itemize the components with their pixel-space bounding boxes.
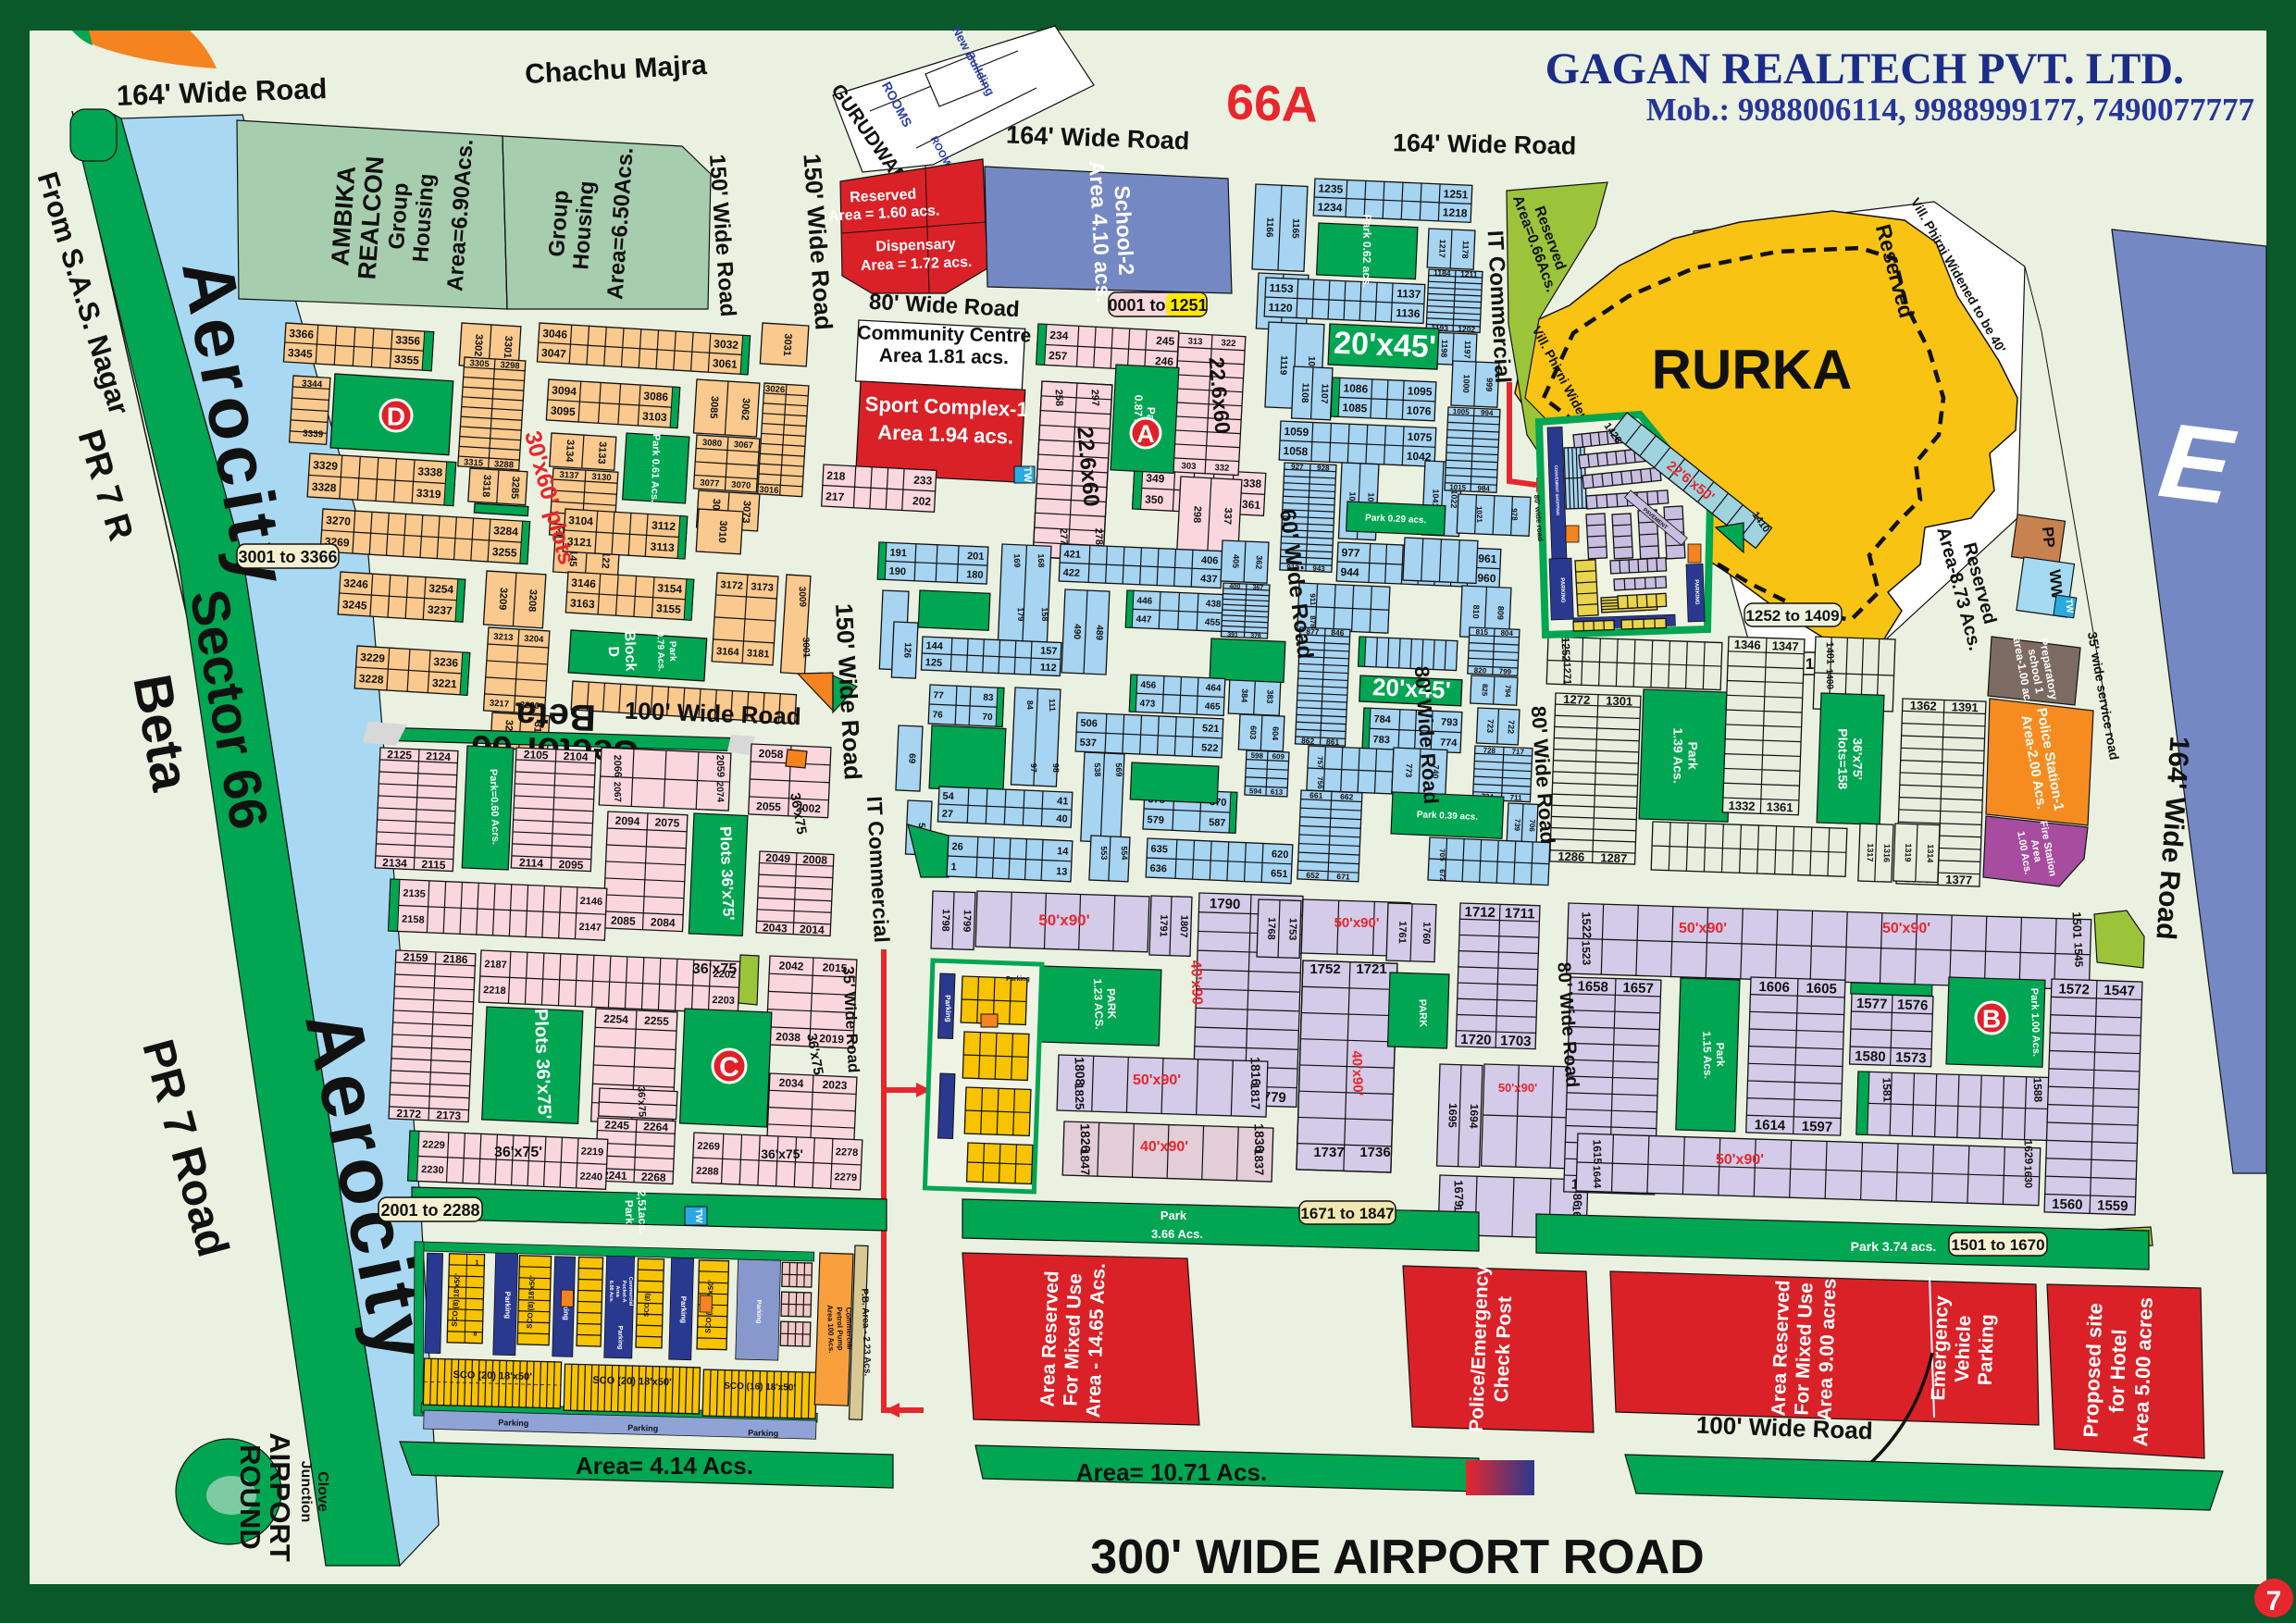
svg-text:1120: 1120	[1268, 301, 1293, 315]
svg-text:1.15 Acs.: 1.15 Acs.	[1700, 1031, 1715, 1079]
svg-text:1615: 1615	[1591, 1139, 1605, 1164]
svg-text:2023: 2023	[822, 1078, 848, 1092]
svg-text:1736: 1736	[1359, 1145, 1390, 1160]
svg-text:2114: 2114	[519, 856, 544, 870]
svg-text:Check Post: Check Post	[1491, 1296, 1516, 1403]
svg-text:3067: 3067	[734, 440, 754, 451]
svg-text:112: 112	[1040, 663, 1057, 675]
svg-text:609: 609	[1272, 752, 1285, 762]
svg-text:1.23 ACS.: 1.23 ACS.	[1091, 978, 1106, 1029]
svg-text:2288: 2288	[696, 1166, 719, 1178]
svg-text:3001: 3001	[800, 638, 812, 659]
svg-text:1703: 1703	[1500, 1033, 1532, 1049]
svg-text:1768: 1768	[1265, 917, 1277, 940]
svg-text:40'x90': 40'x90'	[1348, 1050, 1366, 1096]
svg-text:D: D	[387, 403, 405, 431]
svg-text:313: 313	[1187, 336, 1202, 347]
svg-text:2066: 2066	[612, 754, 624, 777]
svg-text:1058: 1058	[1283, 444, 1309, 458]
svg-text:1: 1	[950, 861, 957, 873]
svg-text:1837: 1837	[1251, 1148, 1266, 1175]
svg-text:1005: 1005	[1453, 407, 1471, 416]
svg-text:2043: 2043	[763, 921, 788, 935]
svg-text:1816: 1816	[1247, 1057, 1263, 1086]
svg-text:1287: 1287	[1600, 850, 1627, 865]
svg-text:234: 234	[1049, 328, 1069, 342]
svg-text:69: 69	[906, 753, 916, 764]
svg-text:661: 661	[1309, 790, 1323, 800]
svg-text:Community Centre: Community Centre	[857, 322, 1031, 346]
svg-text:1166: 1166	[1263, 217, 1274, 239]
svg-text:1580: 1580	[1855, 1048, 1886, 1065]
svg-text:2074: 2074	[714, 782, 726, 803]
svg-text:376: 376	[1250, 633, 1261, 640]
svg-text:636: 636	[1149, 863, 1167, 875]
svg-text:1807: 1807	[1178, 915, 1190, 938]
svg-text:3070: 3070	[731, 480, 751, 491]
svg-text:2085: 2085	[611, 914, 637, 928]
svg-text:723: 723	[1485, 719, 1496, 733]
svg-text:3236: 3236	[433, 655, 459, 670]
svg-text:84: 84	[1025, 700, 1035, 710]
svg-text:Block: Block	[621, 630, 639, 671]
svg-text:3319: 3319	[416, 487, 441, 502]
svg-text:Plots=158: Plots=158	[1836, 728, 1851, 789]
svg-text:804: 804	[1500, 629, 1513, 638]
svg-text:3062: 3062	[738, 398, 751, 421]
svg-text:2095: 2095	[558, 858, 584, 872]
svg-text:383: 383	[1265, 689, 1275, 703]
svg-text:Park: Park	[1160, 1208, 1187, 1222]
svg-text:PARKING: PARKING	[1559, 577, 1566, 603]
svg-text:2134: 2134	[382, 856, 408, 870]
svg-text:794: 794	[1503, 685, 1512, 698]
svg-text:2240: 2240	[579, 1171, 602, 1183]
svg-text:1559: 1559	[2097, 1197, 2128, 1214]
svg-text:1202: 1202	[1458, 324, 1476, 334]
svg-text:1501 to 1670: 1501 to 1670	[1951, 1236, 2044, 1254]
svg-text:1825: 1825	[1072, 1083, 1086, 1109]
svg-text:for Hotel: for Hotel	[2104, 1329, 2130, 1413]
svg-text:337: 337	[1222, 507, 1234, 525]
svg-text:1119: 1119	[1278, 355, 1289, 376]
svg-text:1606: 1606	[1758, 979, 1790, 996]
svg-text:1761: 1761	[1396, 921, 1409, 944]
svg-text:1085: 1085	[1342, 401, 1368, 415]
svg-text:1198: 1198	[1439, 340, 1449, 358]
svg-text:1252 to 1409: 1252 to 1409	[1745, 607, 1839, 625]
svg-text:613: 613	[1271, 787, 1284, 797]
svg-text:1605: 1605	[1806, 981, 1837, 997]
svg-text:2268: 2268	[641, 1171, 667, 1184]
svg-text:1000: 1000	[1461, 374, 1471, 392]
svg-text:Vehicle: Vehicle	[1952, 1315, 1976, 1382]
svg-text:1301: 1301	[1606, 694, 1632, 709]
svg-text:3146: 3146	[571, 576, 597, 591]
svg-text:825: 825	[1481, 684, 1490, 697]
svg-text:1847: 1847	[1077, 1148, 1092, 1175]
svg-text:36'x75': 36'x75'	[635, 1086, 647, 1121]
svg-text:300' WIDE AIRPORT ROAD: 300' WIDE AIRPORT ROAD	[1090, 1530, 1704, 1584]
svg-text:76: 76	[932, 710, 943, 720]
svg-text:1752: 1752	[1309, 961, 1340, 977]
svg-text:3077: 3077	[700, 477, 720, 489]
svg-text:820: 820	[1474, 666, 1487, 675]
svg-text:Parking: Parking	[627, 1423, 658, 1433]
svg-text:Parking: Parking	[616, 1326, 623, 1350]
svg-text:1332: 1332	[1728, 799, 1755, 813]
svg-text:3137: 3137	[559, 470, 579, 481]
svg-text:Parking: Parking	[755, 1300, 762, 1324]
svg-text:164' Wide Road: 164' Wide Road	[1393, 129, 1577, 159]
svg-text:Park 0.62 acs.: Park 0.62 acs.	[1360, 215, 1374, 289]
svg-text:98: 98	[1051, 763, 1061, 773]
svg-text:538: 538	[1093, 762, 1103, 776]
svg-text:422: 422	[1062, 567, 1080, 579]
svg-text:711: 711	[1509, 793, 1522, 802]
svg-text:603: 603	[1248, 725, 1259, 739]
svg-text:3155: 3155	[656, 601, 682, 616]
svg-text:13: 13	[1056, 866, 1068, 878]
svg-text:783: 783	[1372, 734, 1390, 746]
svg-text:1021: 1021	[1475, 506, 1484, 524]
svg-text:36'x75: 36'x75	[692, 961, 737, 977]
svg-text:3355: 3355	[394, 353, 420, 367]
svg-text:0001 to 1251: 0001 to 1251	[1108, 296, 1207, 315]
svg-text:554: 554	[1120, 846, 1130, 860]
svg-text:1523: 1523	[1580, 940, 1594, 965]
svg-text:2038: 2038	[776, 1030, 801, 1044]
svg-text:1086: 1086	[1343, 381, 1369, 395]
svg-text:1217: 1217	[1437, 239, 1447, 257]
svg-text:1252: 1252	[1559, 637, 1573, 662]
svg-text:2218: 2218	[483, 985, 506, 997]
svg-text:1629: 1629	[2022, 1139, 2036, 1164]
svg-text:579: 579	[1147, 814, 1164, 826]
svg-text:3302: 3302	[472, 334, 484, 357]
svg-text:1137: 1137	[1396, 287, 1421, 301]
svg-text:943: 943	[1312, 564, 1325, 574]
svg-text:671: 671	[1336, 872, 1350, 882]
svg-text:50'x90': 50'x90'	[1716, 1152, 1764, 1168]
svg-text:1: 1	[475, 1260, 478, 1267]
svg-text:1377: 1377	[1945, 873, 1972, 887]
svg-text:Area= 4.14 Acs.: Area= 4.14 Acs.	[576, 1452, 753, 1480]
svg-text:2186: 2186	[442, 952, 468, 966]
svg-text:2269: 2269	[697, 1141, 720, 1153]
svg-text:40'x90: 40'x90	[1187, 960, 1205, 1005]
svg-text:50'x90': 50'x90'	[1038, 911, 1089, 929]
svg-text:1400: 1400	[1824, 669, 1835, 690]
svg-text:3094: 3094	[552, 384, 577, 399]
svg-text:C: C	[719, 1052, 739, 1083]
svg-text:168: 168	[1036, 553, 1047, 567]
svg-text:2094: 2094	[614, 814, 640, 828]
svg-text:774: 774	[1440, 737, 1458, 750]
svg-text:Area= 10.71 Acs.: Area= 10.71 Acs.	[1076, 1458, 1267, 1486]
svg-text:50'x90': 50'x90'	[1498, 1081, 1537, 1095]
svg-text:50'x90': 50'x90'	[1133, 1072, 1181, 1088]
svg-text:717: 717	[1511, 748, 1524, 757]
svg-text:1319: 1319	[1904, 843, 1914, 861]
svg-text:1808: 1808	[1072, 1057, 1087, 1086]
svg-text:361: 361	[1242, 498, 1261, 512]
svg-text:799: 799	[1499, 667, 1512, 676]
svg-text:Park: Park	[1686, 741, 1701, 770]
svg-text:2219: 2219	[580, 1146, 603, 1158]
svg-text:927: 927	[1291, 463, 1304, 472]
svg-text:SCO (20) 18'x50': SCO (20) 18'x50'	[592, 1375, 672, 1388]
svg-text:3254: 3254	[428, 582, 454, 597]
svg-text:3213: 3213	[493, 632, 514, 643]
svg-text:2245: 2245	[604, 1118, 630, 1132]
svg-text:50'x90': 50'x90'	[1882, 921, 1930, 936]
svg-text:2279: 2279	[834, 1171, 857, 1183]
svg-text:TW: TW	[693, 1208, 704, 1223]
svg-text:3.66 Acs.: 3.66 Acs.	[1151, 1227, 1203, 1241]
svg-text:1401: 1401	[1824, 641, 1836, 664]
svg-text:Park: Park	[667, 641, 678, 662]
svg-text:3301: 3301	[502, 335, 514, 358]
svg-text:2254: 2254	[603, 1012, 629, 1026]
svg-text:1545: 1545	[2072, 942, 2086, 967]
svg-text:3237: 3237	[428, 603, 453, 618]
svg-text:1547: 1547	[2104, 983, 2135, 999]
svg-text:944: 944	[1340, 565, 1359, 579]
svg-text:1015: 1015	[1449, 483, 1467, 492]
svg-text:521: 521	[1202, 723, 1220, 735]
svg-text:PARKING: PARKING	[1694, 579, 1700, 605]
svg-text:2084: 2084	[651, 915, 676, 929]
svg-text:1657: 1657	[1622, 980, 1654, 997]
svg-text:20'x45': 20'x45'	[1333, 326, 1436, 365]
svg-text:Clove: Clove	[315, 1471, 330, 1512]
svg-text:Area: Area	[614, 1286, 620, 1298]
svg-text:2264: 2264	[643, 1120, 669, 1134]
svg-text:125: 125	[925, 657, 943, 669]
svg-text:3095: 3095	[551, 404, 577, 419]
svg-text:332: 332	[1214, 463, 1229, 474]
svg-text:349: 349	[1146, 471, 1165, 485]
svg-text:1577: 1577	[1856, 996, 1888, 1012]
svg-text:456: 456	[1140, 680, 1157, 691]
svg-text:1347: 1347	[1771, 638, 1798, 653]
svg-text:AIRPORT: AIRPORT	[264, 1432, 296, 1562]
svg-text:14: 14	[1057, 846, 1070, 858]
svg-text:391: 391	[1227, 632, 1238, 639]
svg-text:1362: 1362	[1910, 699, 1937, 713]
svg-text:1560: 1560	[2052, 1196, 2083, 1213]
svg-text:405: 405	[1231, 554, 1241, 568]
svg-text:3288: 3288	[494, 459, 515, 470]
svg-text:50'x90': 50'x90'	[1334, 915, 1380, 931]
svg-text:Parking: Parking	[498, 1418, 528, 1428]
svg-text:1712: 1712	[1464, 904, 1496, 921]
svg-text:1218: 1218	[1443, 205, 1469, 219]
svg-text:928: 928	[1317, 464, 1330, 473]
svg-text:3318: 3318	[480, 475, 492, 498]
svg-text:B: B	[1982, 1005, 2001, 1034]
svg-text:464: 464	[1206, 683, 1222, 694]
svg-text:2135: 2135	[403, 888, 426, 900]
svg-text:Parking: Parking	[679, 1296, 688, 1324]
svg-text:350: 350	[1145, 492, 1164, 506]
svg-text:277: 277	[1058, 528, 1070, 546]
svg-text:2125: 2125	[387, 748, 413, 762]
svg-text:846: 846	[1331, 627, 1345, 638]
svg-text:861: 861	[1326, 737, 1340, 747]
svg-text:1235: 1235	[1318, 181, 1344, 195]
svg-text:3366: 3366	[289, 327, 315, 341]
svg-text:1671 to 1847: 1671 to 1847	[1300, 1205, 1394, 1222]
svg-text:3229: 3229	[360, 650, 386, 665]
svg-text:705: 705	[1438, 849, 1446, 861]
svg-text:400: 400	[1229, 584, 1240, 591]
svg-text:1753: 1753	[1286, 918, 1298, 941]
svg-text:977: 977	[1341, 546, 1360, 560]
svg-text:36'x75': 36'x75'	[1851, 737, 1866, 780]
svg-text:1076: 1076	[1407, 403, 1433, 417]
svg-text:1234: 1234	[1317, 200, 1343, 214]
svg-text:2203: 2203	[712, 995, 735, 1007]
svg-text:1694: 1694	[1467, 1104, 1481, 1129]
svg-text:1271: 1271	[1561, 662, 1573, 685]
svg-text:3103: 3103	[642, 410, 668, 425]
svg-text:1361: 1361	[1766, 799, 1793, 814]
svg-text:2159: 2159	[403, 950, 429, 964]
svg-text:1059: 1059	[1284, 425, 1309, 439]
svg-text:662: 662	[1340, 792, 1354, 802]
svg-text:1317: 1317	[1866, 843, 1876, 861]
svg-text:Parking: Parking	[503, 1292, 512, 1319]
svg-text:406: 406	[1201, 555, 1219, 567]
svg-text:1760: 1760	[1421, 922, 1433, 945]
svg-text:3085: 3085	[707, 396, 719, 419]
svg-text:3246: 3246	[343, 576, 369, 591]
svg-text:54: 54	[942, 791, 955, 803]
svg-text:1272: 1272	[1563, 692, 1590, 707]
svg-text:40: 40	[1056, 813, 1068, 825]
svg-text:3080: 3080	[702, 438, 723, 449]
svg-text:Proposed site: Proposed site	[2079, 1303, 2106, 1438]
svg-text:1737: 1737	[1313, 1145, 1344, 1160]
svg-text:1501: 1501	[2069, 911, 2084, 938]
svg-text:994: 994	[1481, 409, 1494, 418]
svg-text:3338: 3338	[417, 465, 443, 479]
svg-text:3130: 3130	[591, 472, 612, 483]
svg-text:862: 862	[1301, 736, 1315, 746]
svg-text:1817: 1817	[1247, 1083, 1262, 1109]
svg-text:1644: 1644	[1591, 1165, 1603, 1189]
svg-text:773: 773	[1404, 763, 1414, 777]
svg-text:191: 191	[889, 547, 907, 559]
svg-text:3001 to 3366: 3001 to 3366	[238, 548, 337, 566]
svg-text:2158: 2158	[402, 914, 425, 926]
svg-text:111: 111	[1048, 699, 1057, 712]
svg-text:809: 809	[1496, 606, 1506, 620]
svg-text:1211: 1211	[1460, 269, 1478, 279]
svg-text:3329: 3329	[313, 458, 339, 473]
svg-text:126: 126	[901, 642, 912, 659]
svg-text:Parking: Parking	[943, 995, 952, 1022]
svg-text:Junction: Junction	[298, 1461, 314, 1523]
svg-text:1790: 1790	[1210, 896, 1241, 912]
svg-text:438: 438	[1206, 599, 1222, 610]
svg-text:473: 473	[1139, 699, 1156, 710]
svg-text:Area 100 Acs.: Area 100 Acs.	[825, 1305, 836, 1353]
svg-text:Dispensary: Dispensary	[875, 237, 956, 255]
svg-text:Park 3.74 acs.: Park 3.74 acs.	[1851, 1239, 1937, 1254]
svg-text:Park 0.61 Acs.: Park 0.61 Acs.	[649, 434, 662, 502]
svg-text:1165: 1165	[1289, 218, 1300, 240]
svg-text:3061: 3061	[713, 356, 738, 371]
svg-text:506: 506	[1080, 718, 1098, 730]
svg-text:522: 522	[1201, 742, 1219, 754]
svg-text:537: 537	[1079, 737, 1097, 750]
svg-text:Parking: Parking	[748, 1428, 778, 1438]
svg-text:3086: 3086	[643, 390, 669, 404]
svg-text:961: 961	[1478, 551, 1497, 565]
svg-text:793: 793	[1441, 717, 1458, 729]
svg-text:1679: 1679	[1451, 1180, 1466, 1207]
svg-text:810: 810	[1471, 604, 1482, 618]
svg-text:Parking: Parking	[1975, 1314, 1999, 1386]
svg-text:2172: 2172	[396, 1107, 422, 1121]
svg-text:SCO (20) 18'x50': SCO (20) 18'x50'	[453, 1369, 532, 1382]
svg-text:1630: 1630	[2022, 1165, 2034, 1188]
svg-text:SCO (16) 18'x50': SCO (16) 18'x50'	[724, 1381, 796, 1394]
svg-text:TW: TW	[1022, 466, 1034, 483]
svg-text:322: 322	[1221, 338, 1235, 349]
svg-text:257: 257	[1049, 349, 1068, 363]
svg-text:8: 8	[473, 1332, 477, 1338]
svg-text:40'x90': 40'x90'	[1140, 1139, 1188, 1155]
svg-text:RURKA: RURKA	[1652, 339, 1853, 401]
svg-text:620: 620	[1272, 849, 1289, 861]
svg-text:1720: 1720	[1460, 1032, 1492, 1048]
svg-text:594: 594	[1249, 787, 1262, 796]
svg-text:437: 437	[1200, 574, 1218, 586]
svg-text:2034: 2034	[778, 1076, 804, 1090]
svg-text:Area 1.94 acs.: Area 1.94 acs.	[877, 420, 1014, 448]
svg-text:298: 298	[1191, 505, 1203, 523]
svg-text:2049: 2049	[765, 851, 791, 865]
svg-text:36'x75': 36'x75'	[494, 1145, 542, 1160]
svg-text:PP: PP	[2039, 526, 2058, 548]
svg-text:3009: 3009	[797, 587, 808, 608]
svg-text:Pocket-A: Pocket-A	[621, 1281, 627, 1303]
svg-text:722: 722	[1507, 720, 1517, 734]
svg-text:2278: 2278	[835, 1146, 858, 1158]
svg-text:3315: 3315	[464, 457, 484, 468]
svg-text:1391: 1391	[1952, 700, 1979, 714]
svg-text:2075: 2075	[654, 816, 680, 830]
svg-text:233: 233	[913, 474, 933, 488]
svg-text:7: 7	[2266, 1586, 2282, 1617]
svg-text:757: 757	[1316, 756, 1324, 769]
svg-text:651: 651	[1271, 868, 1288, 880]
svg-text:2,51acs.: 2,51acs.	[635, 1190, 650, 1233]
svg-text:1136: 1136	[1396, 306, 1421, 320]
svg-text:180: 180	[966, 569, 984, 581]
svg-text:1573: 1573	[1895, 1049, 1927, 1066]
svg-text:1576: 1576	[1897, 997, 1929, 1013]
svg-text:553: 553	[1099, 846, 1110, 860]
svg-text:1614: 1614	[1755, 1117, 1787, 1134]
svg-text:2147: 2147	[578, 922, 602, 934]
svg-text:3133: 3133	[596, 441, 608, 465]
svg-text:GAGAN REALTECH PVT. LTD.: GAGAN REALTECH PVT. LTD.	[1545, 44, 2184, 93]
